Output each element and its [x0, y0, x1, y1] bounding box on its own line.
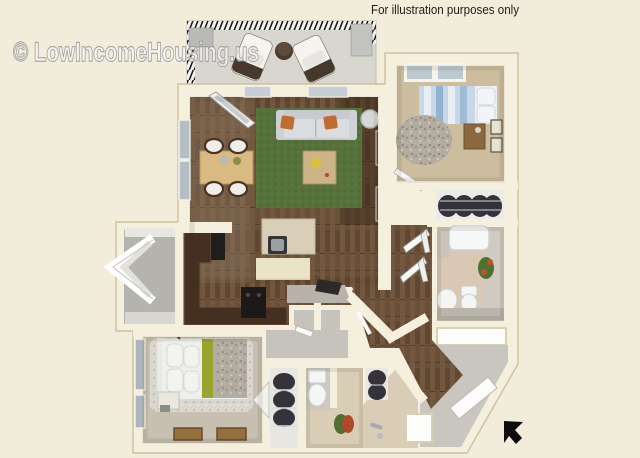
- svg-text:For illustration purposes only: For illustration purposes only: [371, 3, 520, 17]
- svg-text:© LowIncomeHousing.us: © LowIncomeHousing.us: [13, 37, 259, 67]
